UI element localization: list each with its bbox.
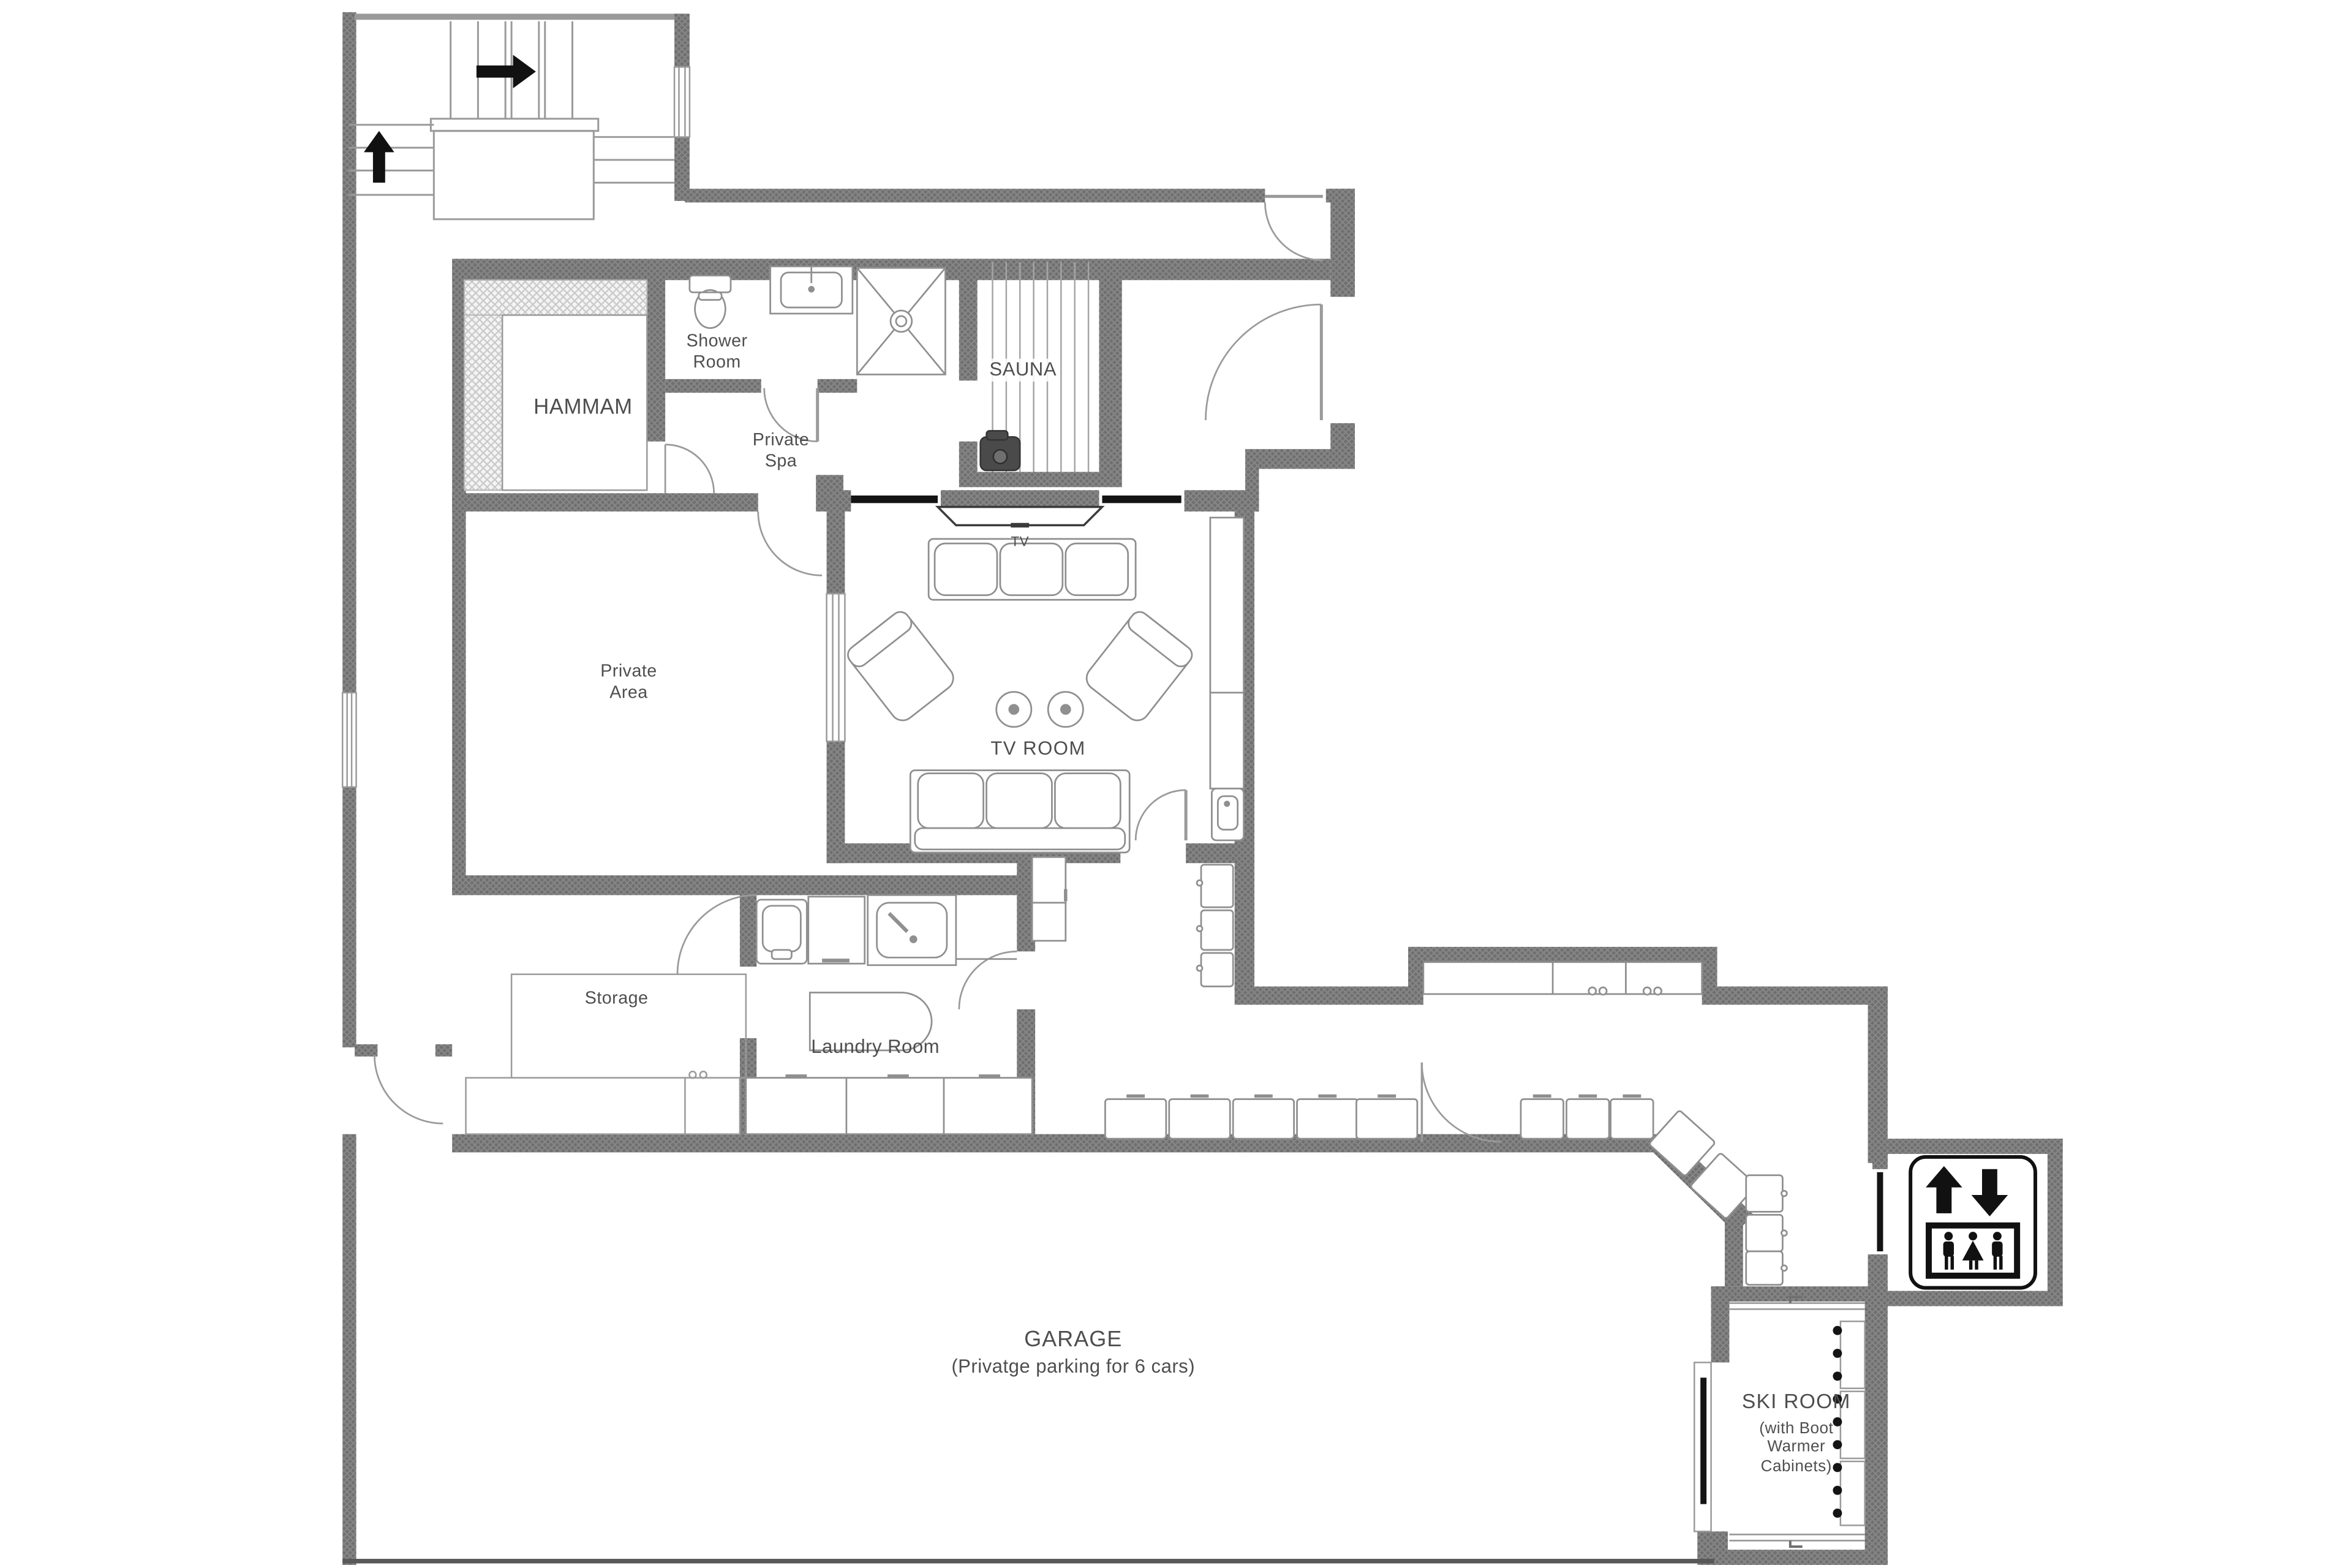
wall-elevator-left-a [1872, 1154, 1888, 1169]
room-label-garage: GARAGE [1024, 1328, 1122, 1354]
armchair-right [1082, 608, 1196, 725]
door-tv-room [1136, 790, 1186, 840]
wall-hall-right-a [1868, 987, 1888, 1163]
wall-stair-top [355, 13, 685, 20]
room-label-hammam: HAMMAM [533, 394, 633, 419]
side-table-right [1048, 692, 1083, 727]
wall-tvtop-mid [941, 490, 1099, 508]
wall-tv-left-a [827, 511, 845, 594]
wall-ski-bottom [1711, 1550, 1888, 1565]
room-label-storage: Storage [585, 990, 649, 1011]
floor-plan-drawing [0, 0, 2352, 1568]
room-label-garage-note: (Privatge parking for 6 cars) [951, 1356, 1195, 1379]
wall-stair-right-a [674, 13, 690, 67]
door-hall-to-stairwell [1265, 197, 1322, 260]
sink-vanity-icon [771, 266, 853, 314]
room-label-ski-room-note: (with Boot Warmer Cabinets) [1759, 1419, 1833, 1476]
tv-icon [938, 507, 1102, 526]
label-tv: TV [1011, 534, 1029, 550]
stair-void [434, 131, 594, 219]
window-tv-room-left [827, 594, 845, 741]
sofa-bottom [910, 771, 1129, 853]
door-laundry [959, 951, 1017, 1009]
wall-topright-a [685, 189, 1265, 202]
room-label-laundry: Laundry Room [811, 1036, 940, 1059]
wall-sauna-left-a [959, 259, 978, 381]
wall-left-connector-b [435, 1044, 452, 1057]
sauna-heater-icon [981, 431, 1020, 470]
storage-counter [466, 1078, 740, 1134]
kitchenette-counter [1423, 962, 1702, 995]
elevator-updown-people-icon [1910, 1157, 2035, 1288]
wall-tvtop-right [1185, 490, 1259, 511]
laundry-bottom-counter [746, 1076, 1032, 1134]
sofa-top [929, 539, 1136, 600]
wall-left-outer-upper [342, 12, 356, 693]
walls-layer [342, 12, 2063, 1565]
side-table-left [997, 692, 1031, 727]
wall-shower-bottom-a [665, 379, 761, 393]
garage-bottom-line [342, 1559, 1714, 1563]
floor-plan-canvas: HAMMAM Shower Room SAUNA Private Spa Pri… [0, 0, 2352, 1568]
wall-kitchenette-top [1408, 947, 1717, 962]
tv-room-furniture [844, 518, 1243, 853]
laundry-sink-icon [868, 895, 956, 965]
boot-warmer-hooks [1833, 1326, 1842, 1518]
wall-hammam-right [647, 259, 665, 442]
door-hall-to-garage [1422, 1063, 1501, 1142]
corridor-left-cabinets [1032, 857, 1066, 941]
wall-sauna-right [1099, 259, 1121, 472]
wall-hall-right-b [1868, 1254, 1888, 1291]
wall-storage-divider-a [740, 895, 756, 967]
door-exterior-right [1205, 304, 1321, 420]
wall-sauna-left-b [959, 442, 978, 472]
room-label-private-spa: Private Spa [753, 431, 809, 472]
tv-room-cabinet-column [1210, 518, 1244, 840]
room-label-ski-room: SKI ROOM [1742, 1390, 1851, 1414]
toilet-icon [690, 276, 731, 328]
staircase [349, 21, 674, 219]
wall-left-outer-mid [342, 787, 356, 1047]
wall-left-connector-a [355, 1044, 377, 1057]
wall-hall-top-a [1235, 987, 1416, 1005]
wall-sauna-bottom [959, 472, 1122, 487]
wall-elevator-bottom [1868, 1291, 2063, 1306]
wall-ski-left-a [1711, 1286, 1730, 1362]
ski-sliding-door-bottom [1729, 1534, 1864, 1547]
wall-ski-right [1865, 1286, 1888, 1565]
laundry-room-fixtures [746, 895, 1032, 1134]
wall-entry-b [1245, 449, 1355, 469]
hall-cabinet-row-left [1105, 1096, 1417, 1139]
hammam-room [464, 280, 647, 490]
wall-left-outer-lower [342, 1134, 356, 1565]
armchair-left [844, 608, 958, 725]
plan-scale-wrapper: HAMMAM Shower Room SAUNA Private Spa Pri… [0, 0, 2352, 1568]
room-label-private-area: Private Area [600, 663, 657, 704]
door-exterior-left [374, 1055, 443, 1123]
wall-elevator-top [1888, 1139, 2063, 1154]
wall-ski-top [1711, 1286, 1875, 1302]
wall-spa-bottom-a [452, 493, 758, 511]
shower-tray-icon [857, 268, 945, 374]
door-hammam [665, 445, 714, 494]
corridor-cabinets [1032, 857, 1787, 1284]
boot-warmer-cabinets [1833, 1321, 1864, 1525]
hammam-bench-top [464, 280, 647, 315]
wall-hall-top-b [1717, 987, 1888, 1005]
door-spa-to-private-area [758, 511, 822, 575]
hall-cabinet-column [1746, 1175, 1787, 1285]
wall-elevator-right [2048, 1139, 2063, 1306]
wall-shower-bottom-b [818, 379, 858, 393]
corridor-right-cabinets [1197, 865, 1233, 987]
wall-laundry-top [452, 875, 1049, 895]
hall-cabinet-row-right [1521, 1096, 1653, 1139]
wall-pillar-topright [1330, 189, 1355, 296]
washing-machine-icon [756, 900, 807, 963]
wall-diag-vert [1725, 1215, 1743, 1286]
room-label-tv-room: TV ROOM [990, 737, 1085, 760]
hall-cabinet-diagonal [1649, 1110, 1757, 1219]
room-label-sauna: SAUNA [986, 359, 1059, 382]
dryer-icon [809, 897, 865, 963]
wall-tvtop-left [827, 490, 851, 511]
room-label-shower-room: Shower Room [687, 333, 748, 374]
window-stairwell [674, 67, 690, 137]
stairs-up-arrow-icon [364, 131, 394, 183]
wall-kitchenette-right [1702, 947, 1717, 1005]
window-left-wall [342, 693, 356, 787]
